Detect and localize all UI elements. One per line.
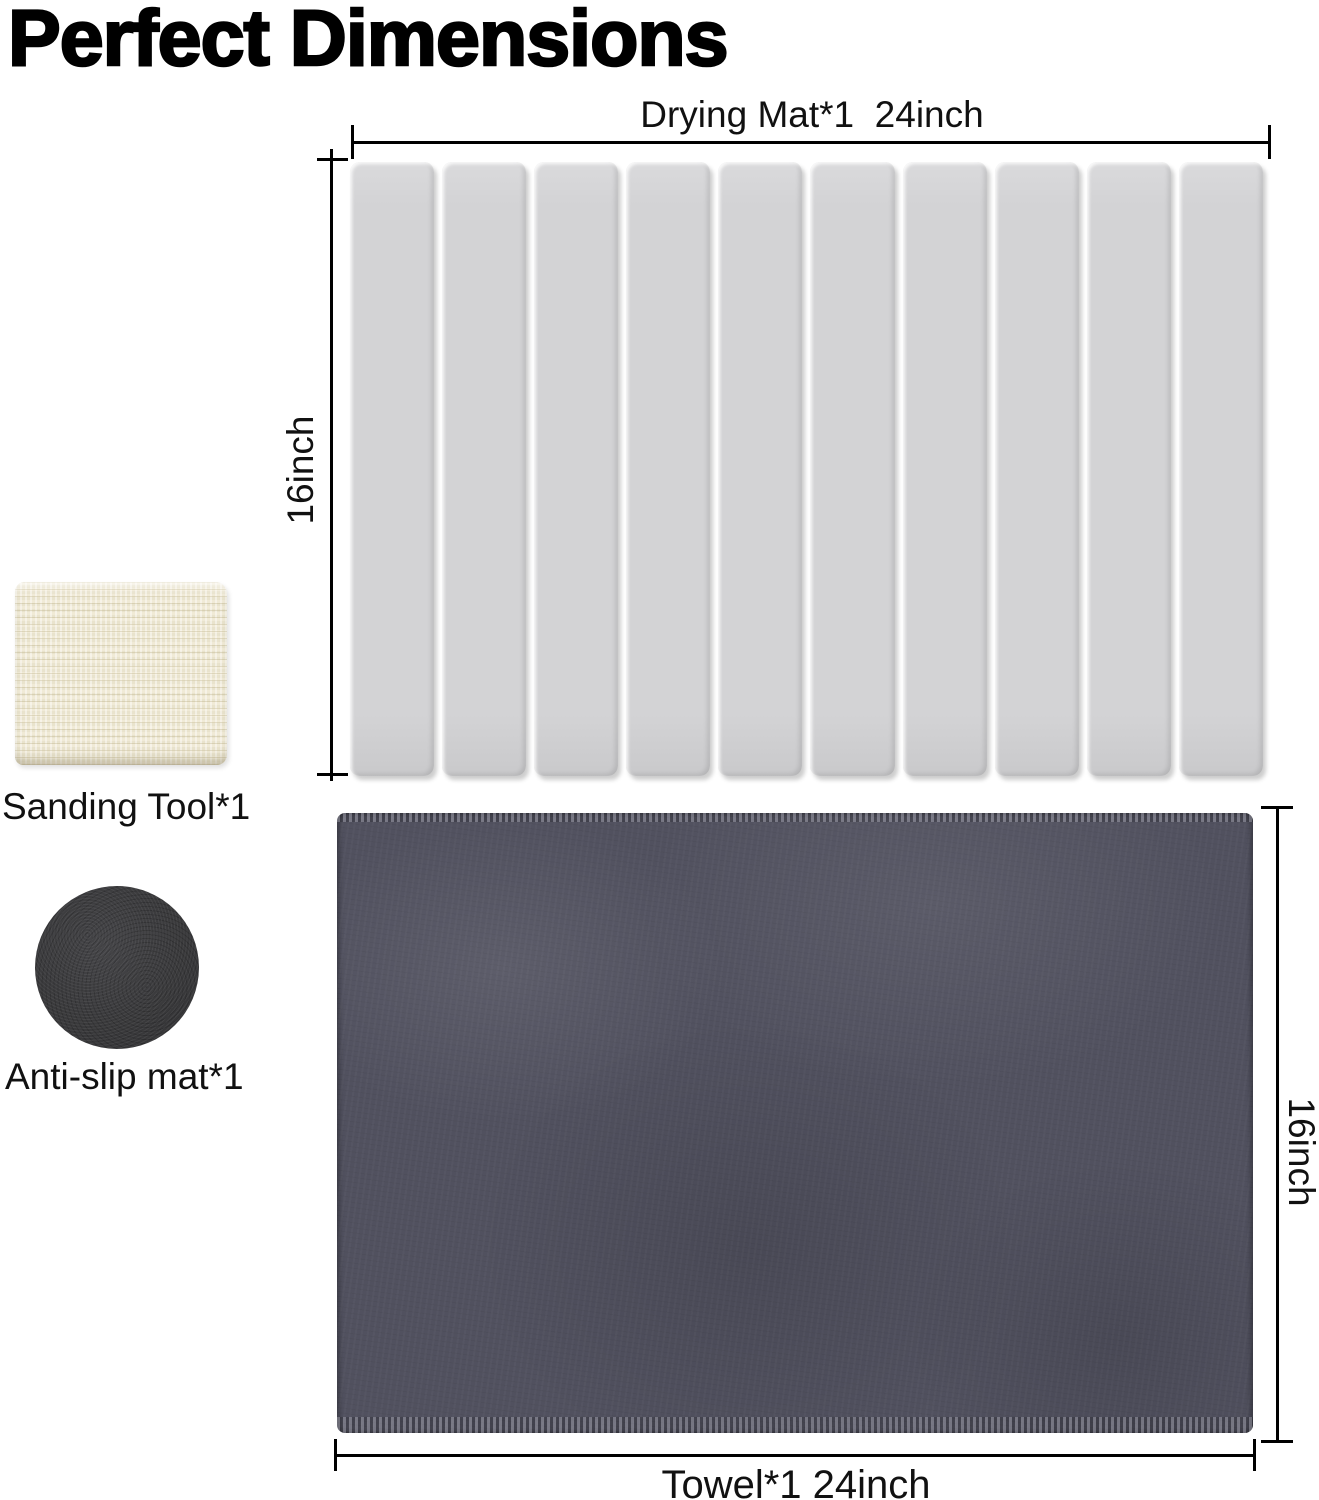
page-title: Perfect Dimensions	[8, 0, 728, 84]
drying-mat-slat	[995, 162, 1079, 776]
drying-mat-slat	[1087, 162, 1171, 776]
drying-mat-width-dimension-line	[353, 141, 1271, 144]
drying-mat-slat	[810, 162, 894, 776]
drying-mat-slat	[442, 162, 526, 776]
towel-image	[337, 813, 1253, 1433]
dimension-tick	[317, 158, 348, 161]
drying-mat-slat	[534, 162, 618, 776]
drying-mat-slat	[350, 162, 434, 776]
drying-mat-width-label: Drying Mat*1 24inch	[353, 94, 1271, 136]
drying-mat-height-label: 16inch	[280, 415, 322, 524]
drying-mat-slat	[718, 162, 802, 776]
drying-mat-height-dimension-line	[330, 149, 333, 781]
towel-width-label: Towel*1 24inch	[336, 1463, 1256, 1500]
anti-slip-mat-label: Anti-slip mat*1	[5, 1056, 244, 1098]
towel-height-label: 16inch	[1280, 1097, 1319, 1206]
drying-mat-image	[350, 162, 1263, 776]
towel-width-dimension-line	[336, 1454, 1256, 1457]
dimension-tick	[1261, 1440, 1293, 1443]
drying-mat-slat	[903, 162, 987, 776]
product-dimensions-infographic: Perfect Dimensions Drying Mat*1 24inch 1…	[0, 0, 1319, 1500]
towel-height-dimension-line	[1276, 806, 1279, 1443]
dimension-tick	[1268, 125, 1271, 159]
dimension-tick	[351, 125, 354, 159]
anti-slip-mat-image	[35, 886, 199, 1049]
dimension-tick	[1261, 806, 1293, 809]
sanding-tool-image	[15, 582, 227, 765]
drying-mat-slat	[1179, 162, 1263, 776]
dimension-tick	[317, 773, 348, 776]
drying-mat-slat	[626, 162, 710, 776]
sanding-tool-label: Sanding Tool*1	[2, 786, 250, 828]
